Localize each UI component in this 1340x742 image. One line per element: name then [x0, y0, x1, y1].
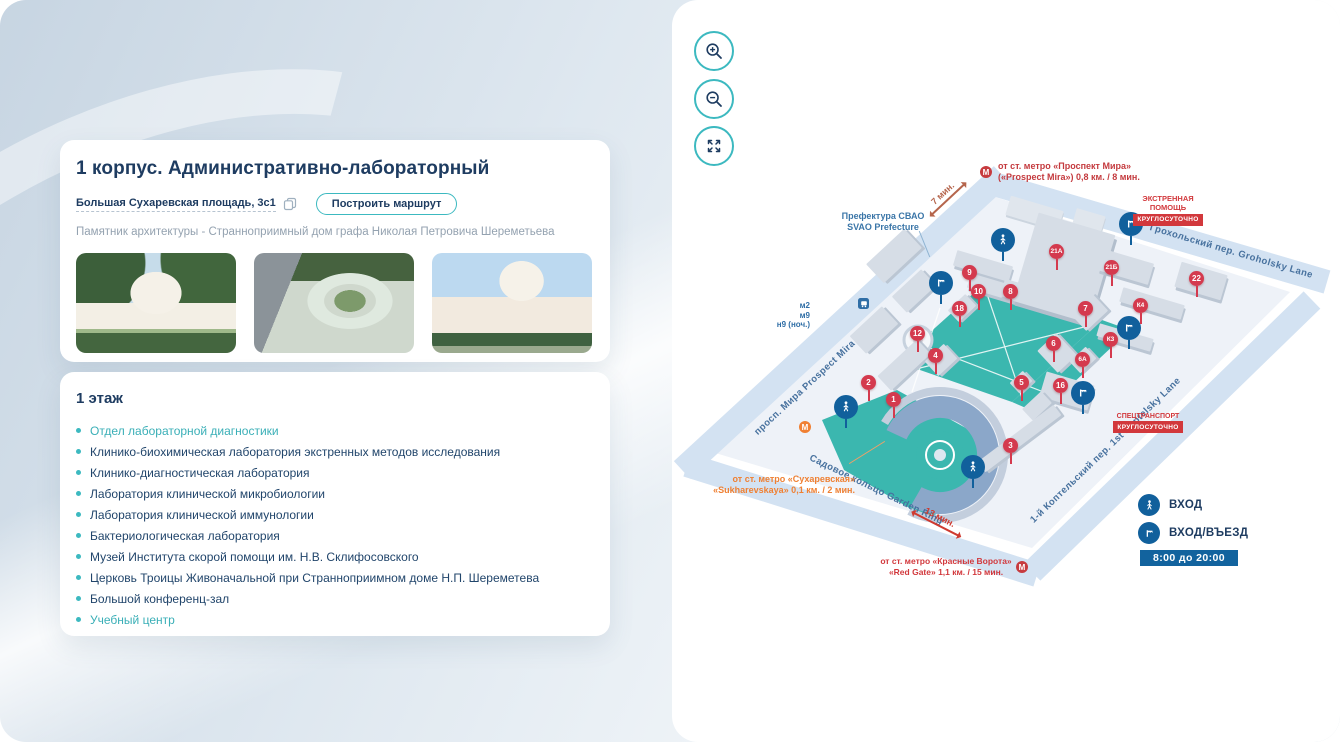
map-marker[interactable]: 16	[1053, 378, 1068, 393]
address-link[interactable]: Большая Сухаревская площадь, 3с1	[76, 197, 276, 212]
building-photo-3[interactable]	[432, 253, 592, 353]
building-info-card: 1 корпус. Административно-лабораторный Б…	[60, 140, 610, 362]
map-marker[interactable]: 21А	[1049, 244, 1064, 259]
bullet-icon	[76, 596, 81, 601]
floor-item: Церковь Троицы Живоначальной при Странно…	[76, 567, 594, 588]
metro-icon: М	[980, 166, 992, 178]
legend-entrance-drive-label: ВХОД/ВЪЕЗД	[1169, 527, 1248, 539]
legend-entrance-label: ВХОД	[1169, 499, 1202, 511]
bullet-icon	[76, 470, 81, 475]
app-window: 1 корпус. Административно-лабораторный Б…	[0, 0, 1340, 742]
map-base	[672, 0, 1340, 742]
metro-icon: М	[1016, 561, 1028, 573]
campus-map-panel: просп. Мира Prospect Mira Садовое кольцо…	[672, 0, 1340, 742]
bullet-icon	[76, 533, 81, 538]
map-marker[interactable]: 18	[952, 301, 967, 316]
map-marker[interactable]: 9	[962, 265, 977, 280]
map-marker[interactable]: 5	[1014, 375, 1029, 390]
page-title: 1 корпус. Административно-лабораторный	[76, 158, 594, 180]
bullet-icon	[76, 554, 81, 559]
bullet-icon	[76, 575, 81, 580]
bullet-icon	[76, 428, 81, 433]
build-route-button[interactable]: Построить маршрут	[316, 193, 458, 215]
metro-sukharevskaya-label: от ст. метро «Сухаревская» «Sukharevskay…	[685, 474, 855, 496]
map-marker[interactable]: 7	[1078, 301, 1093, 316]
spectransport-label: СПЕЦТРАНСПОРТ КРУГЛОСУТОЧНО	[1108, 412, 1188, 433]
bullet-icon	[76, 617, 81, 622]
floor-item: Лаборатория клинической микробиологии	[76, 483, 594, 504]
floor-card: 1 этаж Отдел лабораторной диагностики Кл…	[60, 372, 610, 636]
metro-prospekt-mira-label: от ст. метро «Проспект Мира» («Prospect …	[998, 161, 1140, 183]
map-marker[interactable]: 3	[1003, 438, 1018, 453]
floor-item: Большой конференц-зал	[76, 588, 594, 609]
gate-entrance-icon[interactable]	[1071, 381, 1095, 405]
floor-item: Бактериологическая лаборатория	[76, 525, 594, 546]
map-marker[interactable]: 21Б	[1104, 260, 1119, 275]
gate-entrance-icon[interactable]	[1117, 316, 1141, 340]
map-marker[interactable]: К4	[1133, 298, 1148, 313]
building-photo-1[interactable]	[76, 253, 236, 353]
pedestrian-entrance-icon	[1138, 494, 1160, 516]
emergency-help-label: ЭКСТРЕННАЯ ПОМОЩЬ КРУГЛОСУТОЧНО	[1127, 195, 1209, 226]
floor-item[interactable]: Учебный центр	[76, 609, 594, 630]
floor-title: 1 этаж	[76, 390, 594, 407]
gate-entrance-icon[interactable]	[929, 271, 953, 295]
map-legend: ВХОД ВХОД/ВЪЕЗД 8:00 до 20:00	[1138, 494, 1248, 566]
bullet-icon	[76, 512, 81, 517]
bus-stop-icon	[858, 298, 869, 309]
map-marker[interactable]: 10	[971, 284, 986, 299]
copy-icon[interactable]	[283, 197, 297, 211]
bullet-icon	[76, 449, 81, 454]
floor-list: Отдел лабораторной диагностики Клинико-б…	[76, 420, 594, 630]
building-description: Памятник архитектуры - Странноприимный д…	[76, 226, 594, 238]
floor-item: Клинико-диагностическая лаборатория	[76, 462, 594, 483]
gate-entrance-icon	[1138, 522, 1160, 544]
map-marker[interactable]: 6	[1046, 336, 1061, 351]
map-marker[interactable]: 22	[1189, 271, 1204, 286]
pedestrian-entrance-icon[interactable]	[961, 455, 985, 479]
bus-routes-label: м2 м9 н9 (ноч.)	[750, 301, 810, 330]
map-marker[interactable]: 6А	[1075, 352, 1090, 367]
floor-item: Музей Института скорой помощи им. Н.В. С…	[76, 546, 594, 567]
map-marker[interactable]: К3	[1103, 332, 1118, 347]
map-marker[interactable]: 12	[910, 326, 925, 341]
floor-item: Лаборатория клинической иммунологии	[76, 504, 594, 525]
building-photo-2[interactable]	[254, 253, 414, 353]
working-hours-badge: 8:00 до 20:00	[1140, 550, 1238, 566]
bullet-icon	[76, 491, 81, 496]
floor-item[interactable]: Отдел лабораторной диагностики	[76, 420, 594, 441]
floor-item: Клинико-биохимическая лаборатория экстре…	[76, 441, 594, 462]
map-marker[interactable]: 8	[1003, 284, 1018, 299]
pedestrian-entrance-icon[interactable]	[991, 228, 1015, 252]
map-marker[interactable]: 4	[928, 348, 943, 363]
photo-gallery	[76, 253, 594, 353]
pedestrian-entrance-icon[interactable]	[834, 395, 858, 419]
map-marker[interactable]: 2	[861, 375, 876, 390]
prefecture-label: Префектура СВАО SVAO Prefecture	[840, 211, 926, 233]
metro-red-gate-label: от ст. метро «Красные Ворота» «Red Gate»…	[876, 556, 1016, 577]
metro-icon: М	[799, 421, 811, 433]
map-marker[interactable]: 1	[886, 392, 901, 407]
